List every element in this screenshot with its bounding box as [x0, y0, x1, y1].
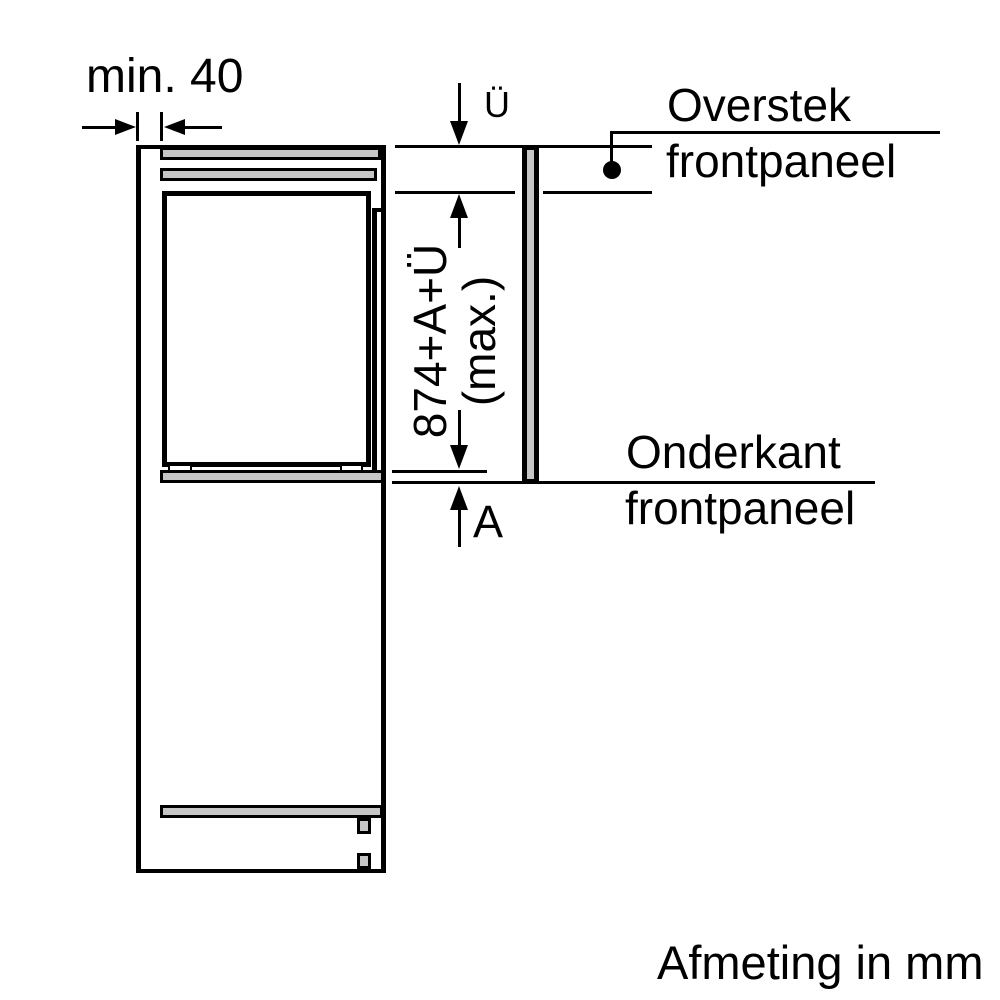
overstek-label-line1: Overstek	[667, 80, 851, 130]
a-dim-arrow-line	[458, 510, 461, 547]
panel-height-label-line1: 874+A+Ü	[406, 191, 455, 491]
appliance-door-line	[372, 208, 377, 470]
overstek-callout-line	[610, 131, 940, 134]
front-panel-strip	[522, 145, 539, 484]
appliance-door-top-line	[372, 208, 386, 212]
onderkant-label-line1: Onderkant	[626, 427, 841, 477]
a-dim-label: A	[473, 497, 503, 547]
niche-floor-panel	[160, 470, 384, 483]
installation-diagram: min. 40 Ü 874+A+Ü (max.) A Overstek fron…	[0, 0, 1000, 1000]
panel-height-arrowhead-down-icon	[450, 445, 468, 469]
min-gap-arrowhead-left-icon	[164, 119, 185, 135]
cabinet-front-edge	[381, 145, 386, 873]
u-dim-arrow-line	[458, 83, 461, 123]
a-dim-arrowhead-icon	[450, 486, 468, 510]
cabinet-back-wall	[136, 145, 141, 873]
appliance-body	[162, 191, 371, 467]
cabinet-bottom-edge	[136, 869, 386, 873]
onderkant-label-line2: frontpaneel	[625, 483, 855, 533]
min-gap-tick-left	[136, 112, 139, 141]
ref-line-appliance-top-right	[543, 191, 652, 194]
cabinet-second-panel	[160, 168, 377, 181]
min-gap-arrowhead-right-icon	[115, 119, 136, 135]
overstek-leader-dot-icon	[603, 161, 621, 179]
min-gap-label: min. 40	[86, 49, 243, 104]
lower-cabinet-rail	[160, 805, 383, 818]
units-note: Afmeting in mm	[657, 937, 983, 989]
panel-height-arrow-line-lower	[458, 410, 461, 447]
cabinet-top-panel	[160, 147, 381, 160]
min-gap-tick-right	[160, 112, 163, 141]
u-dim-label: Ü	[484, 84, 510, 125]
lower-cabinet-block-lower	[357, 853, 371, 869]
u-dim-arrowhead-icon	[450, 121, 468, 145]
ref-line-niche-bottom	[392, 470, 487, 473]
overstek-label-line2: frontpaneel	[666, 136, 896, 186]
min-gap-arrow-left-line	[82, 126, 116, 129]
lower-cabinet-block-upper	[357, 818, 371, 834]
min-gap-arrow-right-line	[185, 126, 222, 129]
